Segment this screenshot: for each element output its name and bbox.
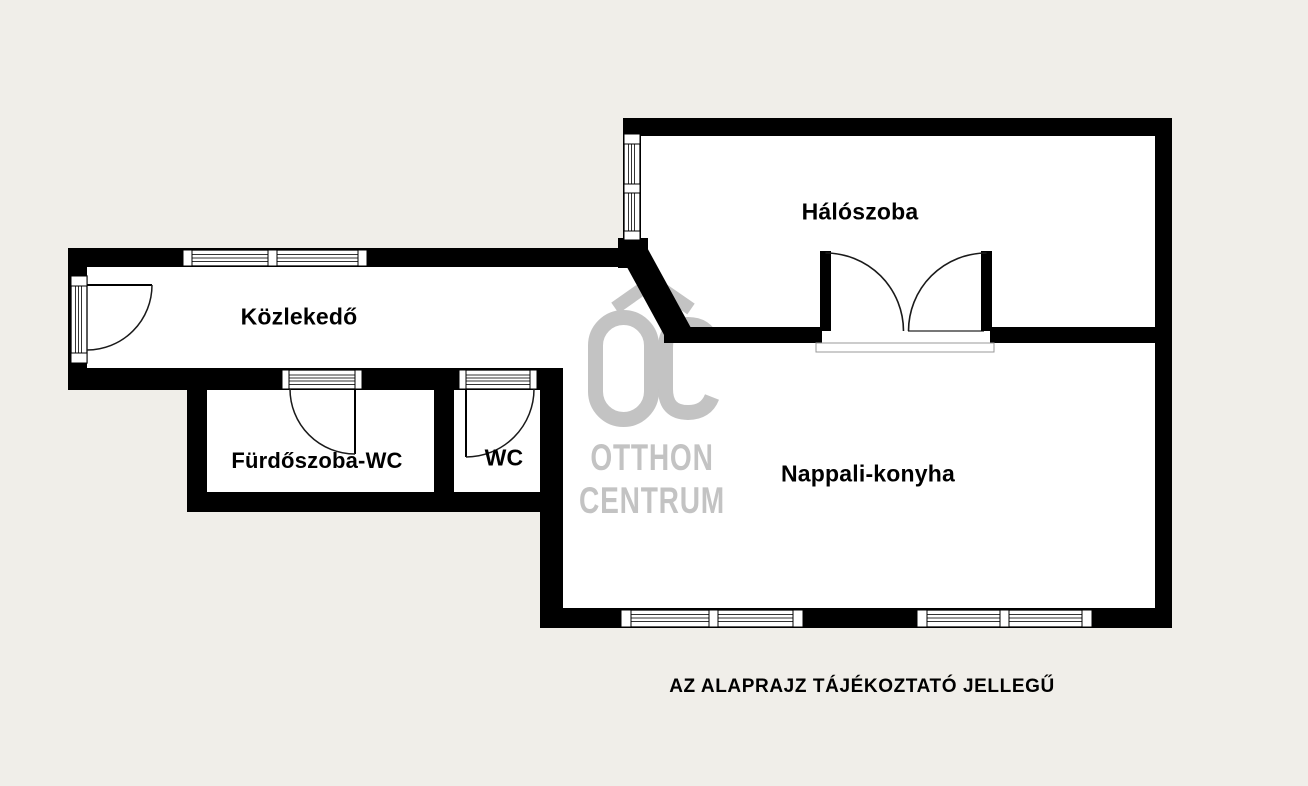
floor-plan-page: Hálószoba Közlekedő Fürdőszoba-WC WC Nap… bbox=[0, 0, 1308, 786]
wc-right-wall bbox=[540, 368, 563, 627]
bedroom-divider-wall-right bbox=[990, 327, 1155, 343]
double-door-left-leaf bbox=[820, 251, 831, 331]
double-door-right-leaf bbox=[981, 251, 992, 331]
watermark-centrum: CENTRUM bbox=[579, 480, 725, 522]
livingroom-window-right bbox=[917, 610, 1092, 627]
livingroom-window-left bbox=[621, 610, 803, 627]
room-label-nappali-konyha: Nappali-konyha bbox=[781, 461, 955, 488]
watermark-otthon: OTTHON bbox=[590, 437, 713, 479]
room-label-kozlekedo: Közlekedő bbox=[241, 304, 358, 331]
bedroom-side-window bbox=[624, 134, 640, 240]
floor-plan-drawing bbox=[0, 0, 1308, 786]
bedroom-divider-wall-left bbox=[664, 327, 822, 343]
bathroom-bottom-wall bbox=[187, 492, 563, 512]
room-label-haloszoba: Hálószoba bbox=[802, 199, 919, 226]
bathroom-wc-divider-wall bbox=[434, 368, 454, 492]
double-door-threshold bbox=[816, 343, 994, 352]
plan-disclaimer-caption: AZ ALAPRAJZ TÁJÉKOZTATÓ JELLEGŰ bbox=[669, 676, 1055, 698]
hallway-window bbox=[183, 250, 367, 266]
room-label-wc: WC bbox=[485, 445, 524, 472]
room-label-furdoszoba-wc: Fürdőszoba-WC bbox=[231, 448, 402, 474]
bedroom-top-wall bbox=[623, 118, 1172, 136]
right-outer-wall bbox=[1155, 118, 1172, 627]
